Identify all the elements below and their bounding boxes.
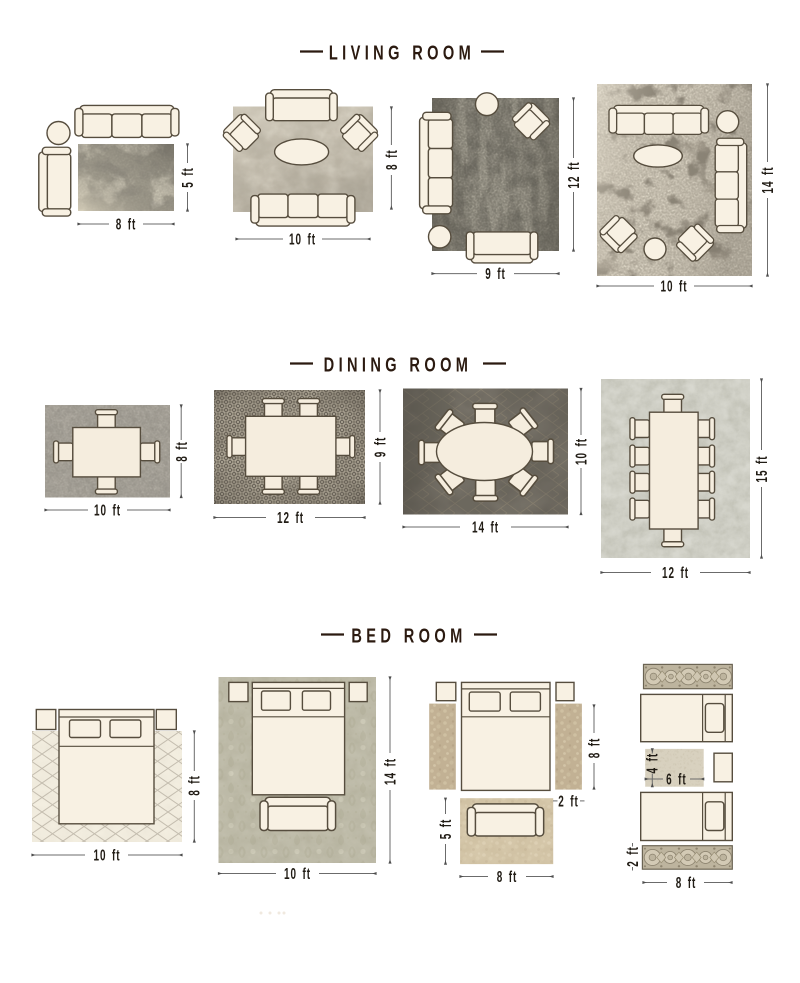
svg-text:10 ft: 10 ft [660,277,687,295]
svg-text:14 ft: 14 ft [472,518,499,536]
svg-text:DINING ROOM: DINING ROOM [324,353,473,376]
svg-text:8 ft: 8 ft [116,215,137,233]
svg-text:5 ft: 5 ft [437,819,455,840]
svg-text:8 ft: 8 ft [497,868,518,886]
svg-text:10 ft: 10 ft [284,865,311,883]
svg-text:8 ft: 8 ft [382,149,400,170]
svg-text:8 ft: 8 ft [676,874,697,892]
svg-text:4 ft: 4 ft [643,753,661,774]
svg-text:12 ft: 12 ft [565,161,583,188]
svg-text:BED ROOM: BED ROOM [351,624,466,647]
svg-text:12 ft: 12 ft [277,509,304,527]
svg-text:10 ft: 10 ft [289,230,316,248]
svg-text:14 ft: 14 ft [381,758,399,785]
svg-text:LIVING ROOM: LIVING ROOM [329,41,475,64]
svg-text:8 ft: 8 ft [585,738,603,759]
svg-text:9 ft: 9 ft [371,437,389,458]
svg-text:12 ft: 12 ft [662,564,689,582]
svg-text:15 ft: 15 ft [753,455,771,482]
svg-text:8 ft: 8 ft [173,441,191,462]
svg-text:9 ft: 9 ft [485,265,506,283]
svg-text:14 ft: 14 ft [759,166,777,193]
svg-text:8 ft: 8 ft [185,775,203,796]
svg-text:10 ft: 10 ft [94,501,121,519]
svg-text:2 ft: 2 ft [558,792,579,810]
svg-text:2 ft: 2 ft [624,846,642,867]
svg-text:10 ft: 10 ft [572,438,590,465]
svg-text:10 ft: 10 ft [93,846,120,864]
svg-text:6 ft: 6 ft [666,770,687,788]
svg-text:5 ft: 5 ft [179,167,197,188]
